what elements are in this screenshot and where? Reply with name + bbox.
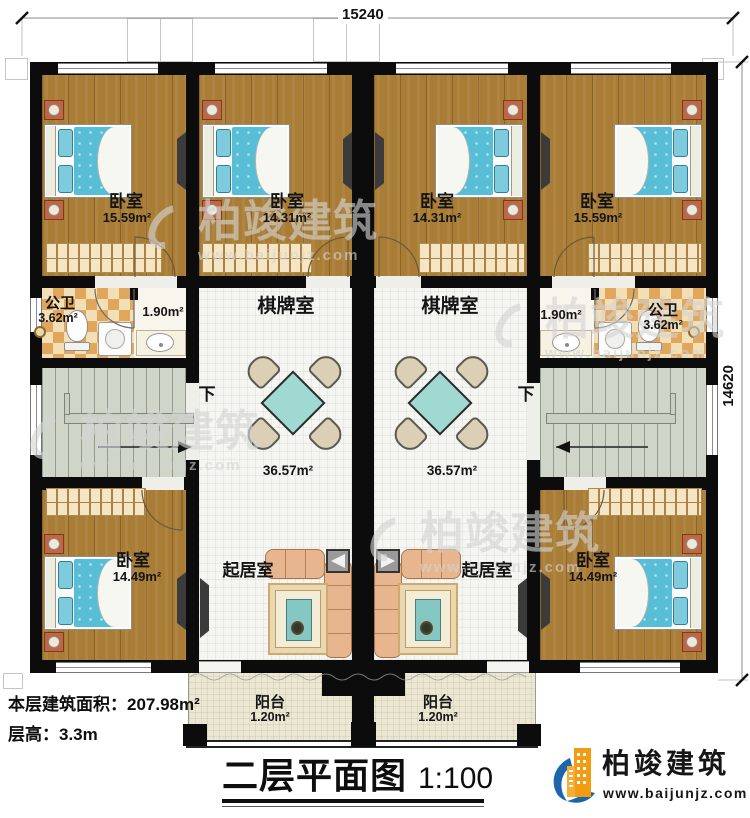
area-label-games-left: 36.57m² xyxy=(263,464,313,478)
title-underline-thin xyxy=(222,806,484,807)
door-opening-bedroom-tl xyxy=(135,276,177,288)
room-label-living-right: 起居室 xyxy=(462,562,513,579)
toilet-tank xyxy=(64,342,90,351)
wall-v1-lower xyxy=(186,490,199,673)
brand-site: www.baijunjz.com xyxy=(603,786,748,800)
nightstand xyxy=(503,100,523,120)
wall-bath-stub-right xyxy=(591,288,599,300)
bed xyxy=(435,124,523,198)
stair-rail xyxy=(64,393,70,415)
room-label-balcony-right: 阳台 xyxy=(423,695,453,710)
window xyxy=(396,63,508,74)
bed-pillow xyxy=(673,561,688,589)
brand-name: 柏竣建筑 xyxy=(602,750,730,778)
bed-pillow xyxy=(216,129,231,157)
wall-v3-lower xyxy=(527,490,540,673)
room-label-bath-right: 公卫 xyxy=(648,303,678,318)
wall-v3-upper xyxy=(527,62,540,358)
balcony-post xyxy=(351,722,376,747)
coffee-table xyxy=(286,599,312,641)
tv-icon xyxy=(343,132,352,190)
door-opening-bath-left xyxy=(95,276,135,288)
scale-label: 1:100 xyxy=(418,762,493,795)
bed-pillow xyxy=(58,561,73,589)
tv-icon xyxy=(541,572,550,630)
room-label-bedroom-tl: 卧室 xyxy=(109,193,143,210)
door-opening-bedroom-tmr xyxy=(376,276,421,288)
bed-headboard xyxy=(204,126,214,196)
window xyxy=(30,385,42,455)
page-title: 二层平面图 xyxy=(222,754,407,797)
floor-lamp-icon xyxy=(688,326,700,338)
room-label-games-left: 棋牌室 xyxy=(257,297,314,316)
sink-icon xyxy=(146,333,174,352)
wardrobe xyxy=(46,243,162,273)
bed xyxy=(614,124,702,198)
wall-v3-mid-a xyxy=(527,358,540,383)
dimension-right: 14620 xyxy=(721,362,738,410)
stairs-down-label-left: 下 xyxy=(199,386,216,403)
washer-icon xyxy=(598,322,632,356)
bed-pillow xyxy=(58,129,73,157)
area-label-bedroom-bl: 14.49m² xyxy=(113,570,161,583)
bed-pillow xyxy=(58,165,73,193)
room-label-bedroom-tr: 卧室 xyxy=(580,193,614,210)
washer-icon xyxy=(98,322,132,356)
stair-rail xyxy=(546,413,676,424)
bed-pillow xyxy=(673,165,688,193)
tv-icon xyxy=(200,578,209,638)
area-label-bedroom-tml: 14.31m² xyxy=(263,211,311,224)
wardrobe xyxy=(46,488,146,516)
tv-icon xyxy=(177,572,186,630)
wall-party xyxy=(352,62,374,747)
wall-bath-bottom-left xyxy=(30,358,199,368)
corner-box xyxy=(3,673,23,689)
window xyxy=(571,63,671,74)
area-label-bedroom-tl: 15.59m² xyxy=(103,211,151,224)
bed-pillow xyxy=(216,165,231,193)
bed-blanket xyxy=(97,127,129,195)
bed-pillow xyxy=(494,129,509,157)
wardrobe xyxy=(588,243,702,273)
nightstand xyxy=(44,200,64,220)
room-label-living-left: 起居室 xyxy=(223,562,274,579)
room-label-bedroom-tmr: 卧室 xyxy=(420,193,454,210)
area-label-bedroom-br: 14.49m² xyxy=(569,570,617,583)
room-label-bedroom-tml: 卧室 xyxy=(270,193,304,210)
bed-pillow xyxy=(58,597,73,625)
wall-v1-mid-a xyxy=(186,358,199,383)
window xyxy=(215,63,327,74)
coffee-table xyxy=(415,599,441,641)
nightstand xyxy=(44,632,64,652)
bed-pillow xyxy=(494,165,509,193)
brand-logo-icon xyxy=(550,744,602,804)
nightstand xyxy=(44,100,64,120)
nightstand xyxy=(503,200,523,220)
bed-headboard xyxy=(690,126,700,196)
corner-box xyxy=(5,58,28,80)
title-underline xyxy=(222,799,484,803)
bed-headboard xyxy=(46,558,56,628)
nightstand xyxy=(682,534,702,554)
tv-icon xyxy=(518,578,527,638)
tv-stand-icon xyxy=(376,549,400,573)
floor-area-text: 本层建筑面积：207.98m² xyxy=(8,690,200,715)
area-label-bedroom-tr: 15.59m² xyxy=(574,211,622,224)
bed xyxy=(202,124,290,198)
floor-plan-canvas: 柏竣建筑 www.baijunjz.com 柏竣建筑 www.baijunjz.… xyxy=(0,0,750,818)
floor-height-text: 层高：3.3m xyxy=(8,720,98,745)
nightstand xyxy=(682,200,702,220)
area-label-games-right: 36.57m² xyxy=(427,464,477,478)
room-label-balcony-left: 阳台 xyxy=(255,695,285,710)
sofa xyxy=(401,549,461,579)
nightstand xyxy=(44,534,64,554)
area-label-hall-right: 1.90m² xyxy=(540,308,581,321)
door-opening-bedroom-tr xyxy=(552,276,596,288)
window xyxy=(58,63,158,74)
wall-v1-upper xyxy=(186,62,199,358)
nightstand xyxy=(202,200,222,220)
room-label-games-right: 棋牌室 xyxy=(421,297,478,316)
balcony-post xyxy=(517,724,541,746)
area-label-bath-left: 3.62m² xyxy=(38,312,78,325)
bed xyxy=(44,124,132,198)
stair-rail xyxy=(64,413,194,424)
window xyxy=(56,662,151,673)
bed-blanket xyxy=(255,127,287,195)
bed-headboard xyxy=(46,126,56,196)
area-label-balcony-right: 1.20m² xyxy=(418,711,458,724)
wardrobe xyxy=(588,488,702,516)
sink-icon xyxy=(552,333,580,352)
balcony-post xyxy=(183,724,207,746)
tv-icon xyxy=(177,132,186,190)
bed xyxy=(614,556,702,630)
bed-headboard xyxy=(690,558,700,628)
room-label-bath-left: 公卫 xyxy=(45,296,75,311)
floor-lamp-icon xyxy=(34,326,46,338)
tv-icon xyxy=(375,132,384,190)
wall-bath-stub-left xyxy=(130,288,138,300)
tv-stand-icon xyxy=(326,549,350,573)
nightstand xyxy=(682,632,702,652)
area-label-balcony-left: 1.20m² xyxy=(250,711,290,724)
stairs-down-label-right: 下 xyxy=(518,386,535,403)
wardrobe xyxy=(419,243,525,273)
door-opening-bedroom-tml xyxy=(306,276,350,288)
area-label-hall-left: 1.90m² xyxy=(142,305,183,318)
tv-icon xyxy=(541,132,550,190)
room-label-bedroom-br: 卧室 xyxy=(576,552,610,569)
nightstand xyxy=(682,100,702,120)
extension-box xyxy=(313,18,380,62)
toilet-tank xyxy=(636,342,662,351)
wall-balcony-jamb-right xyxy=(374,673,405,696)
window xyxy=(580,662,680,673)
area-label-bedroom-tmr: 14.31m² xyxy=(413,211,461,224)
stair-rail xyxy=(670,393,676,415)
wall-balcony-jamb-left xyxy=(322,673,352,696)
extension-box xyxy=(127,18,193,62)
sofa xyxy=(265,549,325,579)
nightstand xyxy=(202,100,222,120)
window xyxy=(706,385,718,455)
bed-pillow xyxy=(673,129,688,157)
dimension-top: 15240 xyxy=(338,7,388,24)
bed-headboard xyxy=(511,126,521,196)
balcony-door-right xyxy=(487,661,529,673)
sofa xyxy=(324,560,352,658)
wardrobe xyxy=(202,243,312,273)
door-opening-bedroom-bl xyxy=(142,477,184,490)
balcony-door-left xyxy=(199,661,241,673)
window xyxy=(706,298,718,332)
area-label-bath-right: 3.62m² xyxy=(643,319,683,332)
door-opening-bath-right xyxy=(595,276,635,288)
room-label-bedroom-bl: 卧室 xyxy=(116,552,150,569)
bed-pillow xyxy=(673,597,688,625)
wall-bath-bottom-right xyxy=(527,358,718,368)
